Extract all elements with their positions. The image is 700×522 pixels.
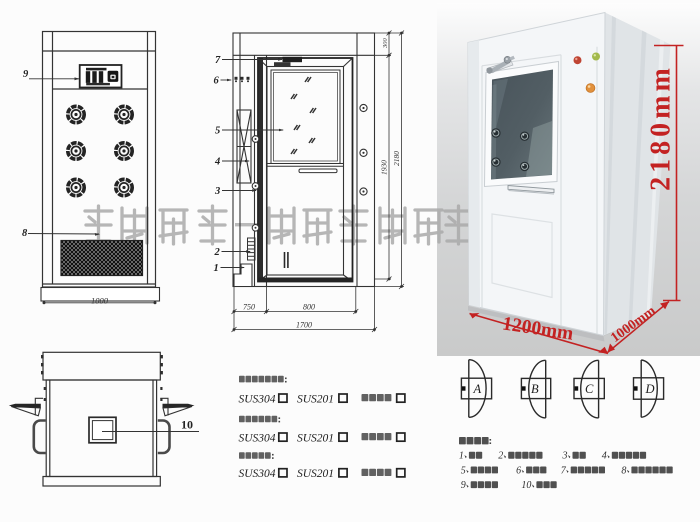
svg-text:9: 9	[461, 480, 466, 491]
svg-text:4: 4	[602, 451, 607, 462]
svg-text:A: A	[473, 382, 482, 396]
svg-text:SUS304: SUS304	[239, 393, 276, 405]
svg-text:5: 5	[461, 465, 466, 476]
svg-text:SUS201: SUS201	[297, 468, 334, 480]
svg-text:B: B	[531, 382, 539, 396]
svg-text:2180mm: 2180mm	[646, 64, 677, 191]
svg-text:C: C	[585, 382, 594, 396]
svg-text:9: 9	[23, 69, 29, 80]
svg-text:4: 4	[214, 157, 220, 168]
svg-text:2: 2	[498, 451, 503, 462]
svg-text:SUS201: SUS201	[297, 393, 334, 405]
svg-text:1000: 1000	[91, 296, 109, 306]
svg-text:750: 750	[243, 303, 255, 312]
svg-text:SUS304: SUS304	[239, 432, 276, 444]
svg-text:6: 6	[214, 76, 220, 87]
svg-text:6: 6	[516, 465, 521, 476]
svg-text:7: 7	[215, 55, 221, 66]
svg-text:SUS304: SUS304	[239, 468, 276, 480]
svg-text:1930: 1930	[380, 160, 389, 175]
svg-text:D: D	[645, 382, 655, 396]
svg-text:10: 10	[521, 480, 531, 491]
svg-text:1: 1	[459, 451, 464, 462]
svg-text:300: 300	[382, 38, 389, 50]
svg-text:3: 3	[214, 186, 220, 197]
svg-text:8: 8	[621, 465, 626, 476]
svg-text:3: 3	[562, 451, 568, 462]
svg-text:1700: 1700	[296, 321, 312, 330]
svg-text:SUS201: SUS201	[297, 432, 334, 444]
svg-text:10: 10	[181, 418, 193, 432]
svg-text:800: 800	[303, 303, 315, 312]
svg-text:2180: 2180	[392, 151, 401, 166]
svg-text:1: 1	[214, 263, 219, 274]
svg-text:5: 5	[215, 126, 220, 137]
svg-text:2: 2	[214, 247, 221, 258]
svg-text:8: 8	[22, 228, 28, 239]
